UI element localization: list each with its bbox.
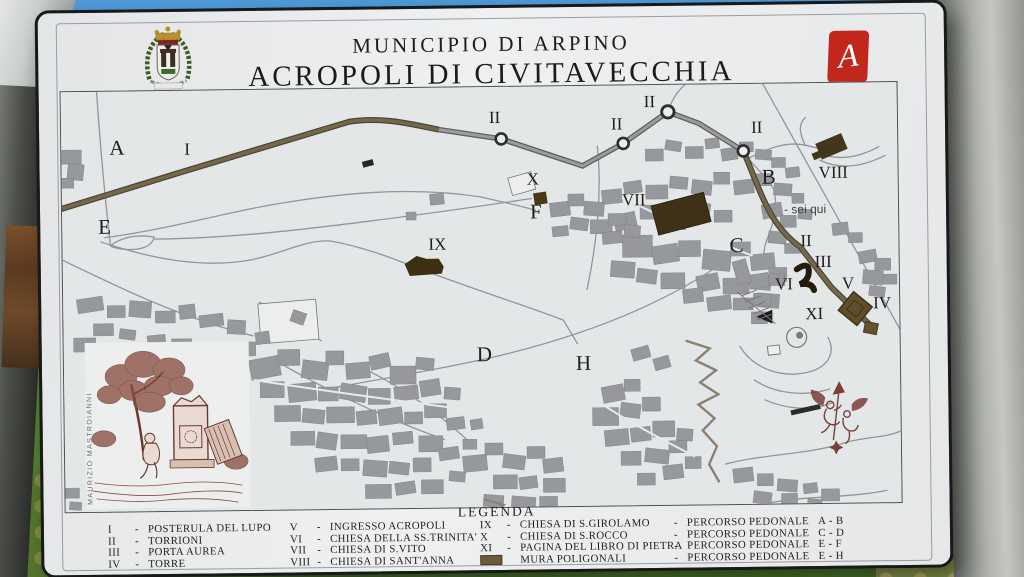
legend-label: POSTERULA DEL LUPO [148, 523, 271, 536]
map-label: IX [428, 235, 446, 254]
legend-column-2: V-INGRESSO ACROPOLIVI-CHIESA DELLA SS.TR… [290, 520, 481, 568]
information-sign: MUNICIPIO DI ARPINO ACROPOLI DI CIVITAVE… [35, 0, 954, 577]
legend-numeral: III [108, 547, 135, 559]
map-label: XI [805, 304, 824, 323]
legend-numeral: IX [480, 520, 507, 532]
map-label: X [527, 169, 540, 188]
map-label: VI [775, 274, 794, 293]
map-label: II [644, 92, 656, 111]
map-label: E [98, 215, 111, 239]
compass-cherubs [799, 380, 880, 455]
legend-column-3: IX-CHIESA DI S.GIROLAMOX-CHIESA DI S.ROC… [480, 518, 691, 569]
map-label: - sei qui [784, 202, 826, 217]
engraving-illustration: MAURIZIO MASTROIANNI [85, 341, 251, 509]
legend: LEGENDA I-POSTERULA DEL LUPOII-TORRIONII… [68, 499, 927, 573]
map-label: I [184, 140, 190, 159]
map-label: C [729, 233, 743, 257]
photo-scene: MUNICIPIO DI ARPINO ACROPOLI DI CIVITAVE… [0, 0, 1024, 577]
map-label: V [842, 274, 855, 293]
legend-label: MURA POLIGONALI [520, 553, 626, 568]
map-label: II [489, 108, 501, 127]
legend-numeral: XI [480, 543, 507, 555]
legend-numeral: IV [108, 559, 135, 571]
map-label: II [751, 118, 763, 137]
legend-numeral: VIII [290, 557, 317, 569]
legend-label: TORRE [148, 558, 185, 570]
map-label: IV [873, 293, 892, 312]
logo-a-glyph: A [837, 39, 859, 74]
map-label: D [477, 342, 492, 366]
map-label: B [762, 165, 776, 189]
legend-numeral: VII [290, 545, 317, 557]
map-label: III [815, 252, 833, 271]
map-label: VIII [818, 163, 848, 182]
map-label: H [576, 351, 591, 375]
map-label: VII [622, 190, 646, 209]
map-label: II [800, 231, 812, 250]
legend-column-4: -PERCORSO PEDONALEA - B-PERCORSO PEDONAL… [670, 515, 911, 564]
legend-label: CHIESA DI SANT'ANNA [330, 555, 454, 568]
legend-item: VIII-CHIESA DI SANT'ANNA [290, 555, 480, 569]
engraving-art [85, 341, 251, 509]
legend-numeral: I [108, 524, 135, 536]
legend-label: PERCORSO PEDONALE [687, 551, 809, 564]
map-label: F [530, 199, 542, 223]
map-label: II [611, 114, 623, 133]
legend-numeral: V [290, 522, 317, 534]
map-label: A [109, 135, 125, 159]
legend-label: PORTA AUREA [148, 546, 225, 558]
route-letters: E - F [818, 539, 842, 551]
route-letters: E - H [819, 550, 845, 562]
mura-poligonali-swatch [480, 554, 502, 564]
legend-item: MURA POLIGONALI [480, 552, 690, 568]
legend-item: IV-TORRE [108, 557, 290, 571]
legend-item: -PERCORSO PEDONALEE - H [670, 549, 910, 563]
archeo-club-logo-mark: A [827, 30, 869, 83]
legend-column-1: I-POSTERULA DEL LUPOII-TORRIONIIII-PORTA… [108, 523, 291, 571]
